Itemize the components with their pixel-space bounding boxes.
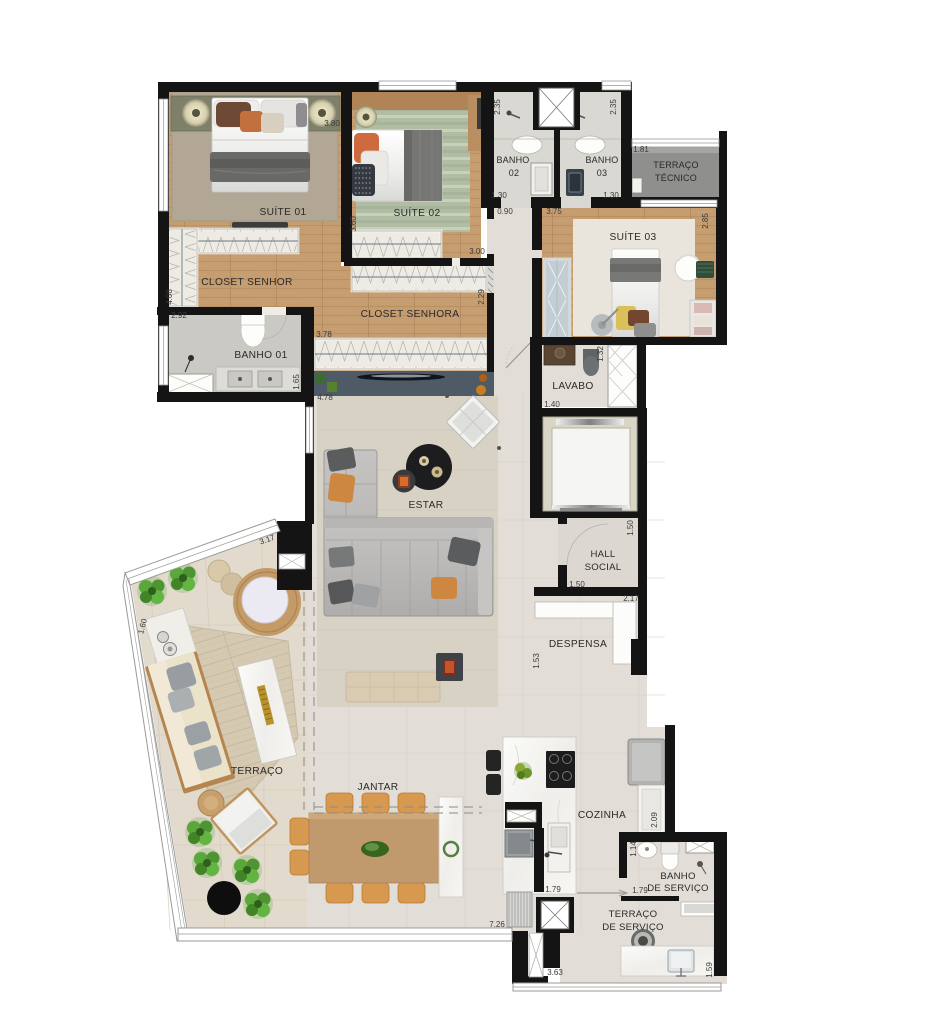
svg-text:02: 02 [509,168,519,178]
svg-text:COZINHA: COZINHA [578,810,626,821]
svg-text:1.59: 1.59 [705,962,714,978]
svg-text:1.50: 1.50 [569,580,585,589]
svg-text:2.35: 2.35 [493,99,502,115]
svg-text:TERRAÇO: TERRAÇO [609,909,658,920]
svg-text:BANHO: BANHO [585,155,618,165]
svg-text:3.78: 3.78 [316,330,332,339]
svg-text:DESPENSA: DESPENSA [549,639,607,650]
svg-text:2.29: 2.29 [477,289,486,305]
svg-text:SUÍTE 03: SUÍTE 03 [610,230,657,243]
svg-text:LAVABO: LAVABO [552,381,593,392]
svg-text:BANHO: BANHO [660,871,695,882]
svg-text:1.65: 1.65 [292,374,301,390]
svg-text:3.75: 3.75 [546,207,562,216]
svg-text:1.30: 1.30 [603,191,619,200]
svg-text:1.30: 1.30 [491,191,507,200]
svg-text:DE SERVIÇO: DE SERVIÇO [647,883,709,894]
svg-text:SUÍTE 02: SUÍTE 02 [394,206,441,219]
svg-text:2.17: 2.17 [623,594,639,603]
svg-text:BANHO 01: BANHO 01 [234,350,287,361]
svg-text:BANHO: BANHO [496,155,529,165]
svg-text:1.79: 1.79 [545,885,561,894]
svg-text:1.40: 1.40 [544,400,560,409]
svg-text:2.09: 2.09 [650,812,659,828]
svg-text:TÉCNICO: TÉCNICO [655,173,697,183]
svg-text:2.85: 2.85 [701,213,710,229]
svg-text:ESTAR: ESTAR [409,500,444,511]
svg-text:0.90: 0.90 [497,207,513,216]
svg-text:2.92: 2.92 [171,311,187,320]
svg-text:7.26: 7.26 [489,920,505,929]
svg-text:DE SERVIÇO: DE SERVIÇO [602,922,664,933]
svg-text:3.60: 3.60 [349,216,358,232]
svg-text:3.80: 3.80 [324,119,340,128]
svg-text:SUÍTE 01: SUÍTE 01 [260,205,307,218]
svg-text:1.14: 1.14 [629,841,638,857]
svg-text:HALL: HALL [591,549,616,560]
svg-text:TERRAÇO: TERRAÇO [231,766,283,777]
svg-text:1.79: 1.79 [632,886,648,895]
svg-text:TERRAÇO: TERRAÇO [653,160,698,170]
svg-text:4.78: 4.78 [317,393,333,402]
svg-text:2.35: 2.35 [609,99,618,115]
svg-text:3.63: 3.63 [547,968,563,977]
svg-text:4.08: 4.08 [165,289,174,305]
svg-text:3.00: 3.00 [469,247,485,256]
svg-text:SOCIAL: SOCIAL [585,562,622,573]
svg-text:1.81: 1.81 [633,145,649,154]
svg-text:CLOSET SENHORA: CLOSET SENHORA [361,309,460,320]
svg-text:1.50: 1.50 [626,520,635,536]
svg-text:JANTAR: JANTAR [358,782,399,793]
svg-text:CLOSET SENHOR: CLOSET SENHOR [201,277,293,288]
svg-text:03: 03 [597,168,607,178]
svg-text:1.53: 1.53 [532,653,541,669]
svg-text:1.32: 1.32 [596,346,605,362]
